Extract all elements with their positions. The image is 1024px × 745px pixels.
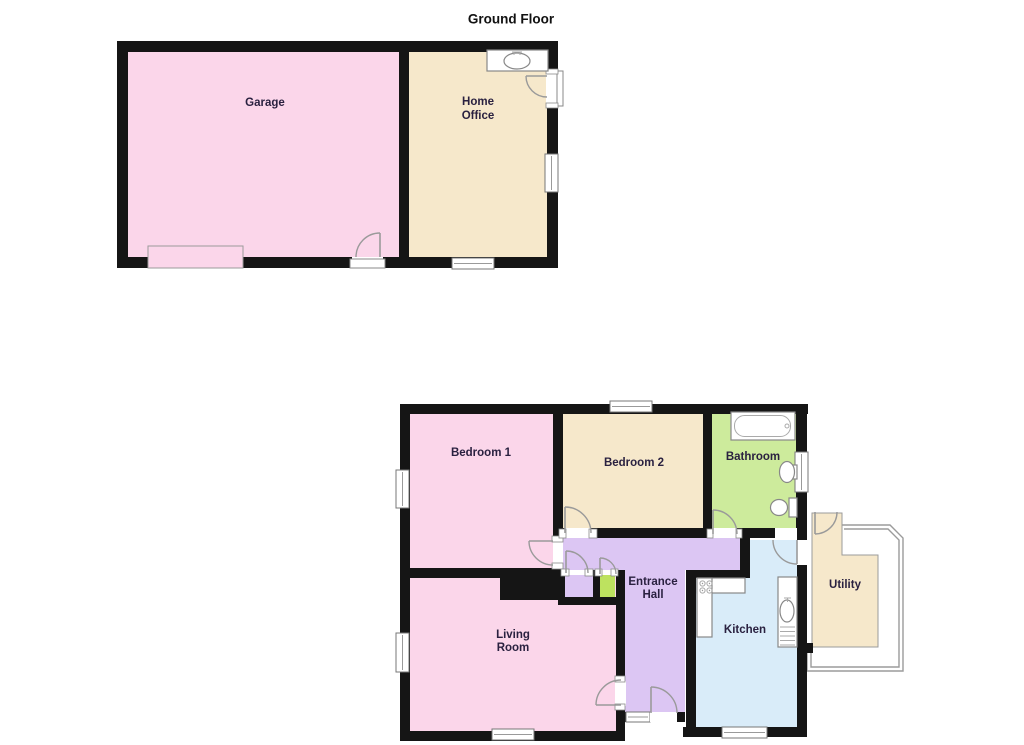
chimney-breast	[500, 573, 562, 600]
sink-icon	[504, 53, 530, 69]
toilet-icon	[771, 500, 788, 516]
wall	[616, 570, 625, 681]
room-home-office	[409, 52, 547, 257]
room-bedroom1	[409, 413, 553, 568]
room-label-utility: Utility	[829, 579, 862, 591]
door-opening	[775, 528, 797, 540]
wall	[797, 528, 807, 540]
room-label-living-1: Living	[496, 629, 530, 641]
wall	[399, 52, 409, 257]
sink-icon	[780, 462, 795, 483]
room-label-bathroom: Bathroom	[726, 451, 780, 463]
floor-title: Ground Floor	[468, 12, 555, 27]
wall	[553, 404, 563, 541]
door-opening	[713, 528, 737, 538]
door-jamb	[552, 563, 563, 569]
wall	[703, 413, 712, 528]
door-opening	[546, 74, 558, 103]
kitchen-sink-drainer-icon	[780, 600, 794, 622]
room-label-home-office-2: Office	[462, 110, 495, 122]
room-garage	[128, 52, 400, 257]
door-jamb	[707, 529, 713, 538]
wall	[591, 528, 712, 538]
door-jamb	[546, 103, 558, 108]
closet-airing-cupboard	[600, 575, 615, 597]
room-label-hall-1: Entrance	[628, 576, 677, 588]
door-frame	[557, 71, 563, 106]
room-label-kitchen: Kitchen	[724, 624, 766, 636]
wall	[117, 41, 128, 268]
room-label-bedroom2: Bedroom 2	[604, 457, 664, 469]
room-label-living-2: Room	[497, 642, 530, 654]
door-jamb	[611, 569, 618, 576]
door-opening	[615, 681, 626, 706]
room-label-hall-2: Hall	[642, 589, 663, 601]
door-jamb	[615, 676, 625, 682]
front-door-opening	[650, 712, 677, 722]
room-label-garage: Garage	[245, 97, 285, 109]
wall	[558, 597, 622, 605]
floor-plan-canvas: Ground Floor	[0, 0, 1024, 745]
door-jamb	[595, 569, 602, 576]
floor-plan: Ground Floor	[0, 0, 1024, 745]
closet-cupboard	[565, 575, 593, 597]
door-opening	[565, 528, 591, 538]
toilet-cistern	[789, 498, 797, 517]
wall	[686, 570, 696, 727]
door-opening	[553, 541, 563, 565]
room-label-bedroom1: Bedroom 1	[451, 447, 512, 459]
wall	[740, 533, 750, 578]
door-frame	[350, 259, 385, 268]
door-jamb	[561, 569, 569, 576]
room-label-home-office-1: Home	[462, 96, 494, 108]
door-jamb	[585, 569, 593, 576]
kitchen-counter	[697, 578, 712, 637]
wall	[797, 643, 813, 653]
room-hall-top	[563, 537, 740, 570]
garage-door	[148, 246, 243, 268]
room-bedroom2	[563, 413, 703, 528]
